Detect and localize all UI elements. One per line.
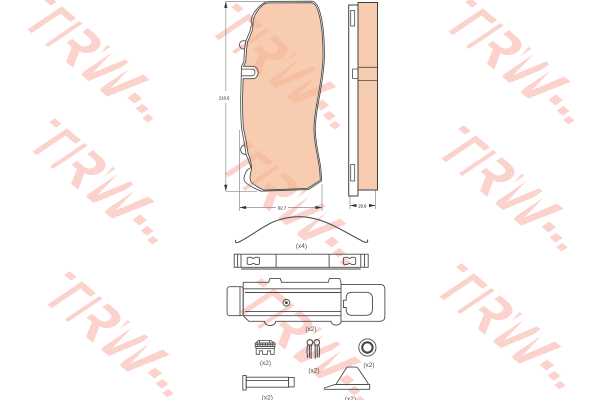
svg-text:92.7: 92.7: [278, 205, 287, 210]
svg-text:29.9: 29.9: [358, 203, 367, 208]
svg-text:(x4): (x4): [296, 243, 307, 250]
svg-text:(x2): (x2): [305, 326, 316, 333]
svg-text:(x2): (x2): [262, 395, 273, 400]
svg-text:(x2): (x2): [345, 396, 356, 400]
svg-text:(x2): (x2): [260, 360, 271, 367]
svg-text:216.6: 216.6: [219, 95, 230, 100]
svg-text:(x2): (x2): [308, 368, 319, 375]
svg-text:(x2): (x2): [363, 362, 374, 369]
